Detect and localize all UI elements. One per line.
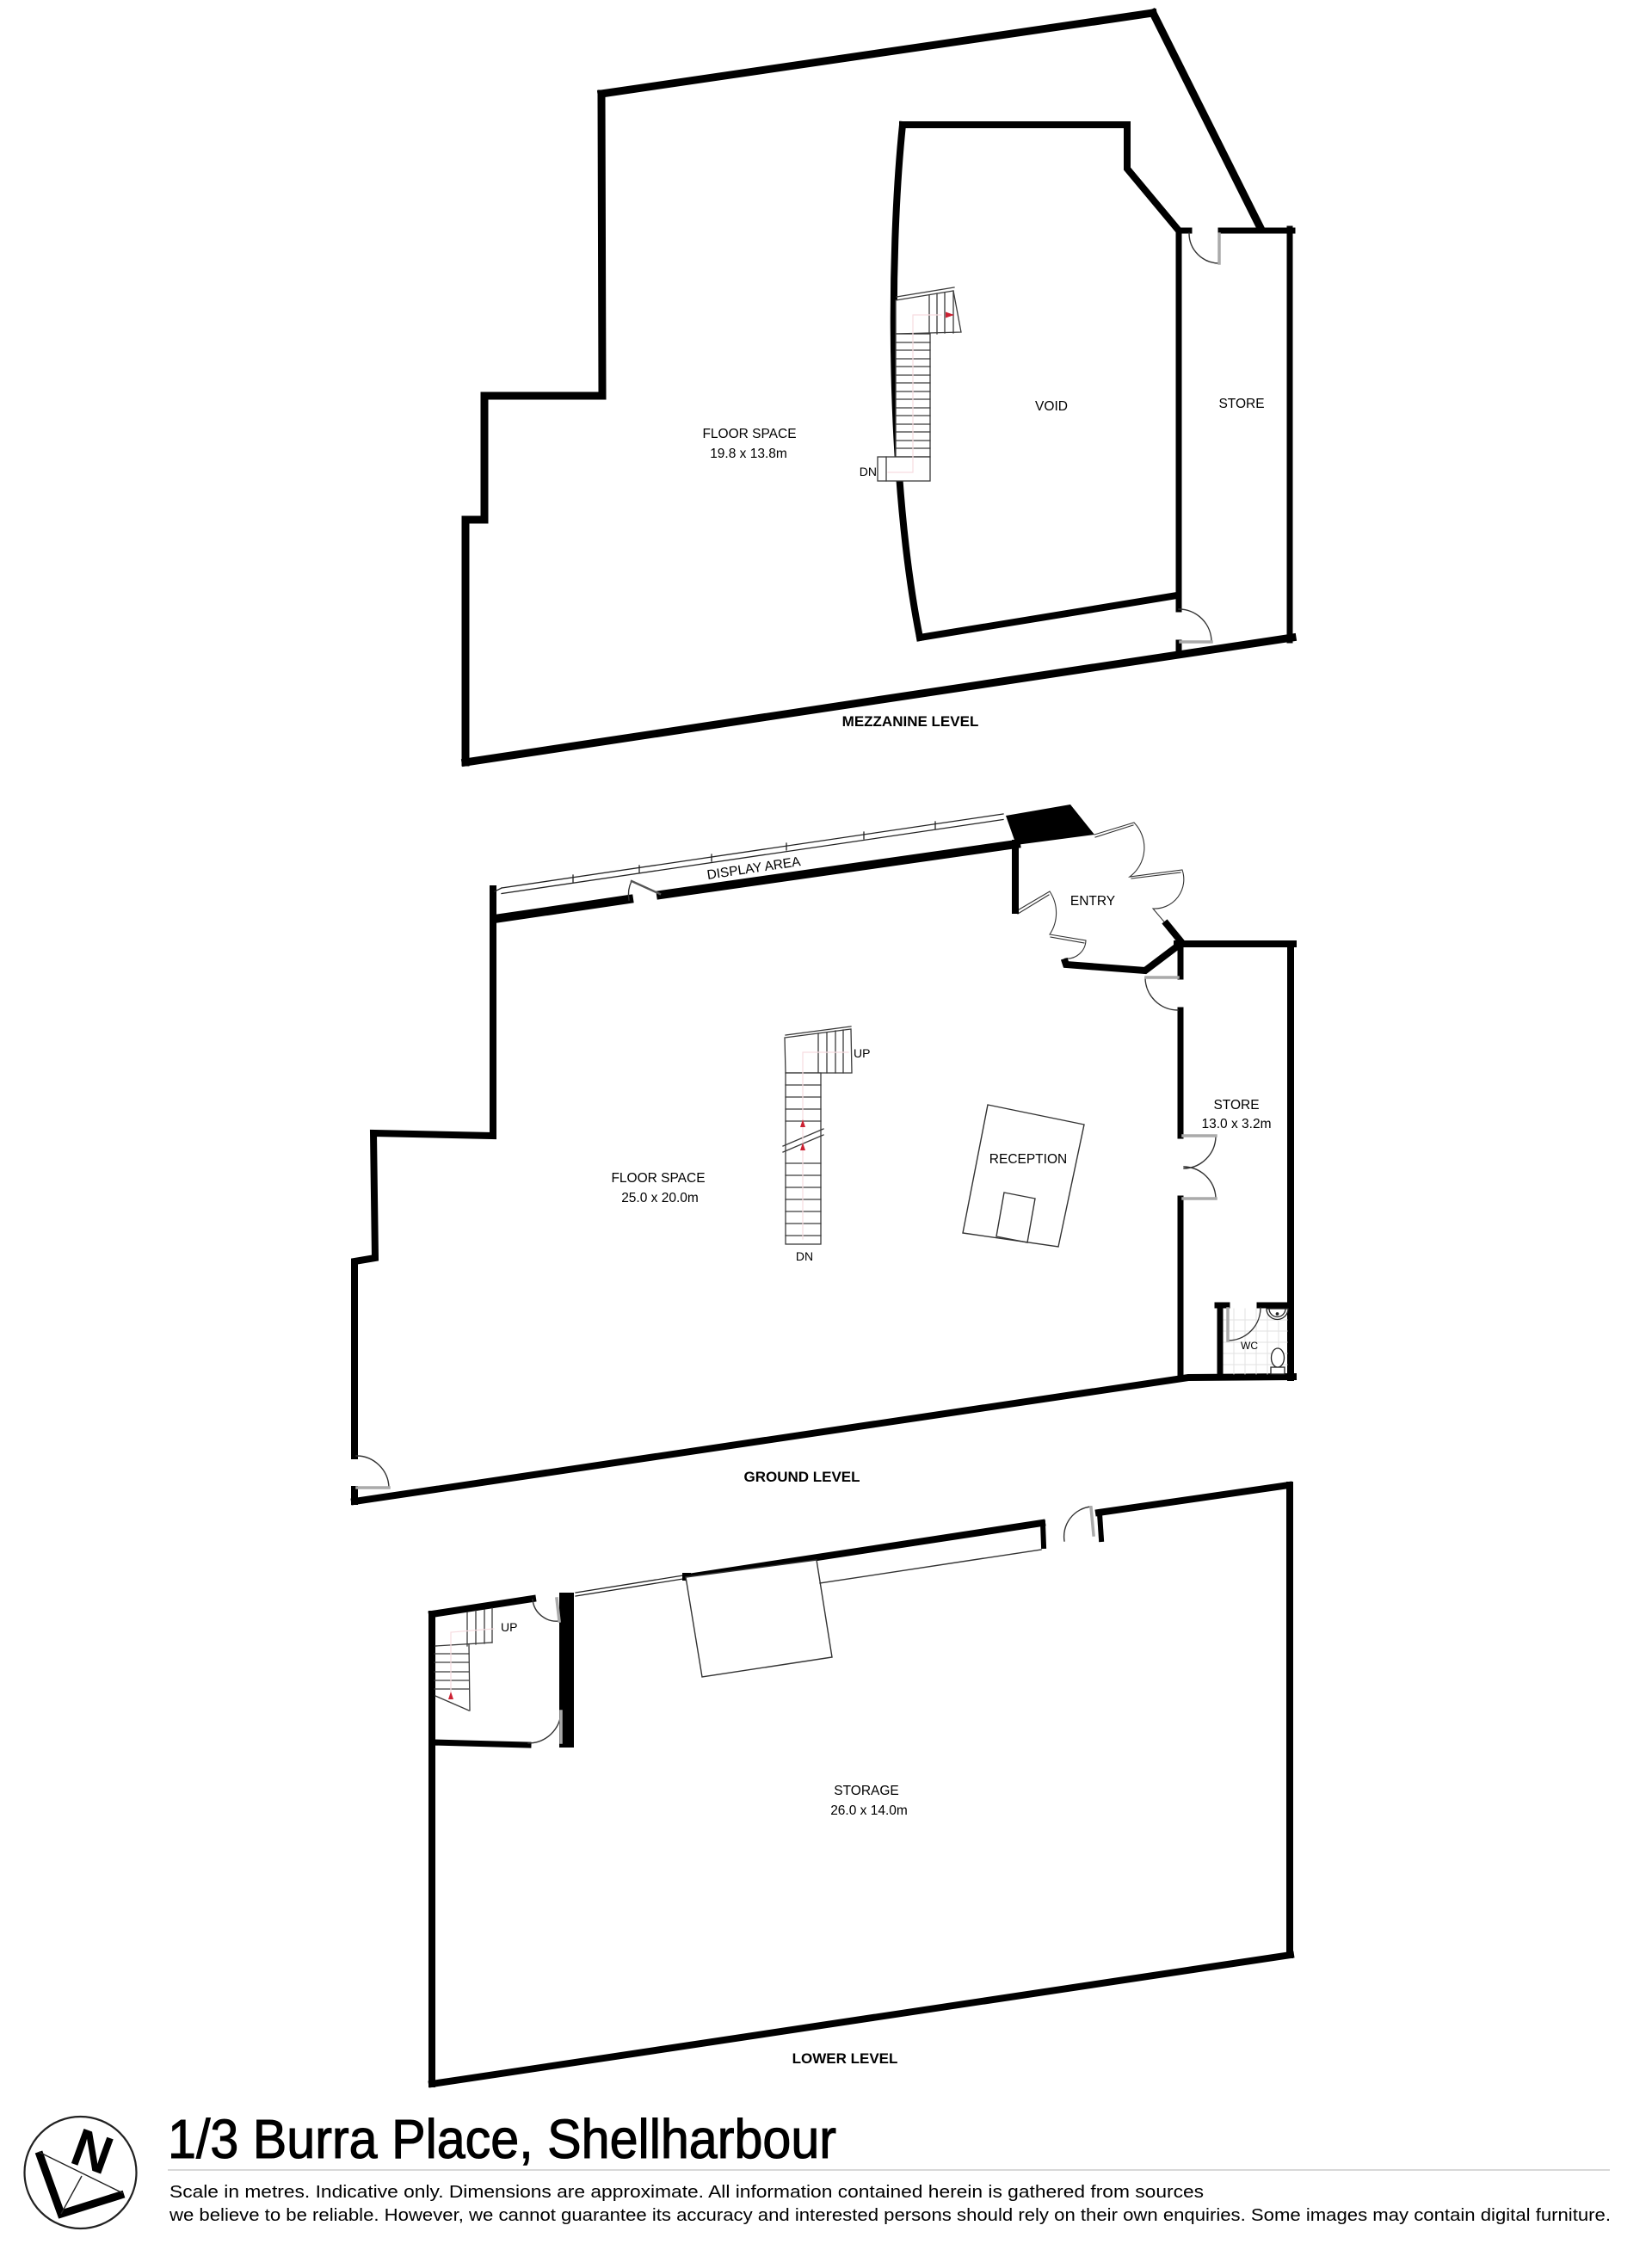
svg-text:LOWER LEVEL: LOWER LEVEL (792, 2050, 898, 2067)
svg-text:STORE: STORE (1218, 397, 1264, 411)
svg-text:we believe to be reliable. How: we believe to be reliable. However, we c… (169, 2206, 1611, 2225)
svg-text:19.8 x 13.8m: 19.8 x 13.8m (710, 447, 787, 461)
svg-text:Scale in metres. Indicative on: Scale in metres. Indicative only. Dimens… (170, 2183, 1204, 2202)
svg-text:UP: UP (501, 1620, 517, 1634)
svg-text:26.0 x 14.0m: 26.0 x 14.0m (830, 1803, 908, 1818)
svg-text:WC: WC (1241, 1340, 1258, 1352)
svg-text:ENTRY: ENTRY (1070, 894, 1115, 909)
svg-text:FLOOR SPACE: FLOOR SPACE (611, 1171, 705, 1186)
svg-text:RECEPTION: RECEPTION (989, 1152, 1067, 1167)
svg-text:MEZZANINE LEVEL: MEZZANINE LEVEL (842, 713, 979, 730)
svg-text:DN: DN (796, 1249, 813, 1263)
svg-text:GROUND LEVEL: GROUND LEVEL (743, 1469, 860, 1485)
svg-text:STORE: STORE (1213, 1098, 1259, 1113)
svg-text:STORAGE: STORAGE (834, 1784, 899, 1798)
svg-text:FLOOR SPACE: FLOOR SPACE (702, 427, 796, 441)
svg-text:25.0 x 20.0m: 25.0 x 20.0m (621, 1191, 699, 1205)
svg-text:VOID: VOID (1035, 399, 1068, 414)
svg-text:UP: UP (854, 1046, 870, 1060)
svg-text:1/3 Burra Place, Shellharbour: 1/3 Burra Place, Shellharbour (168, 2108, 836, 2170)
svg-text:13.0 x 3.2m: 13.0 x 3.2m (1202, 1117, 1272, 1131)
svg-text:DN: DN (860, 465, 877, 478)
